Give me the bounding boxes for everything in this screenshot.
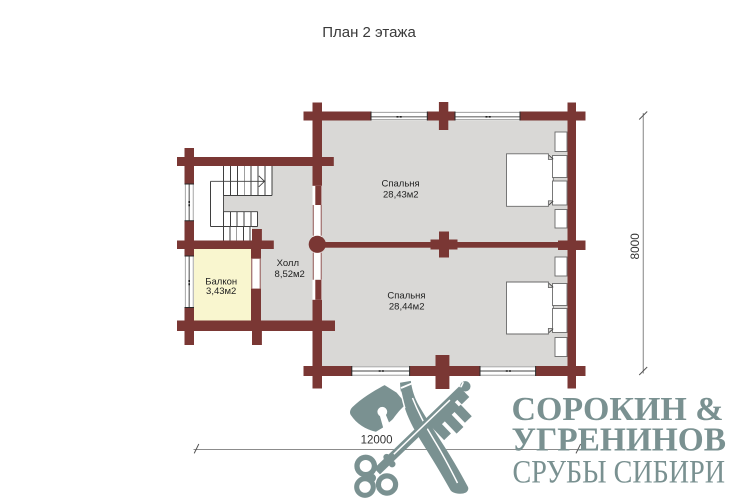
svg-text:8,52м2: 8,52м2 (275, 269, 305, 280)
svg-text:12000: 12000 (361, 434, 393, 446)
svg-text:Холл: Холл (277, 258, 299, 269)
svg-text:8000: 8000 (628, 233, 642, 260)
svg-text:28,43м2: 28,43м2 (383, 190, 419, 201)
svg-text:УГРЕНИНОВ: УГРЕНИНОВ (512, 422, 727, 459)
svg-text:Спальня: Спальня (382, 178, 420, 189)
svg-text:План 2 этажа: План 2 этажа (322, 24, 416, 41)
svg-text:3,43м2: 3,43м2 (206, 286, 236, 297)
svg-text:СРУБЫ СИБИРИ: СРУБЫ СИБИРИ (513, 454, 726, 490)
svg-text:Спальня: Спальня (387, 290, 425, 301)
svg-text:28,44м2: 28,44м2 (389, 302, 425, 313)
